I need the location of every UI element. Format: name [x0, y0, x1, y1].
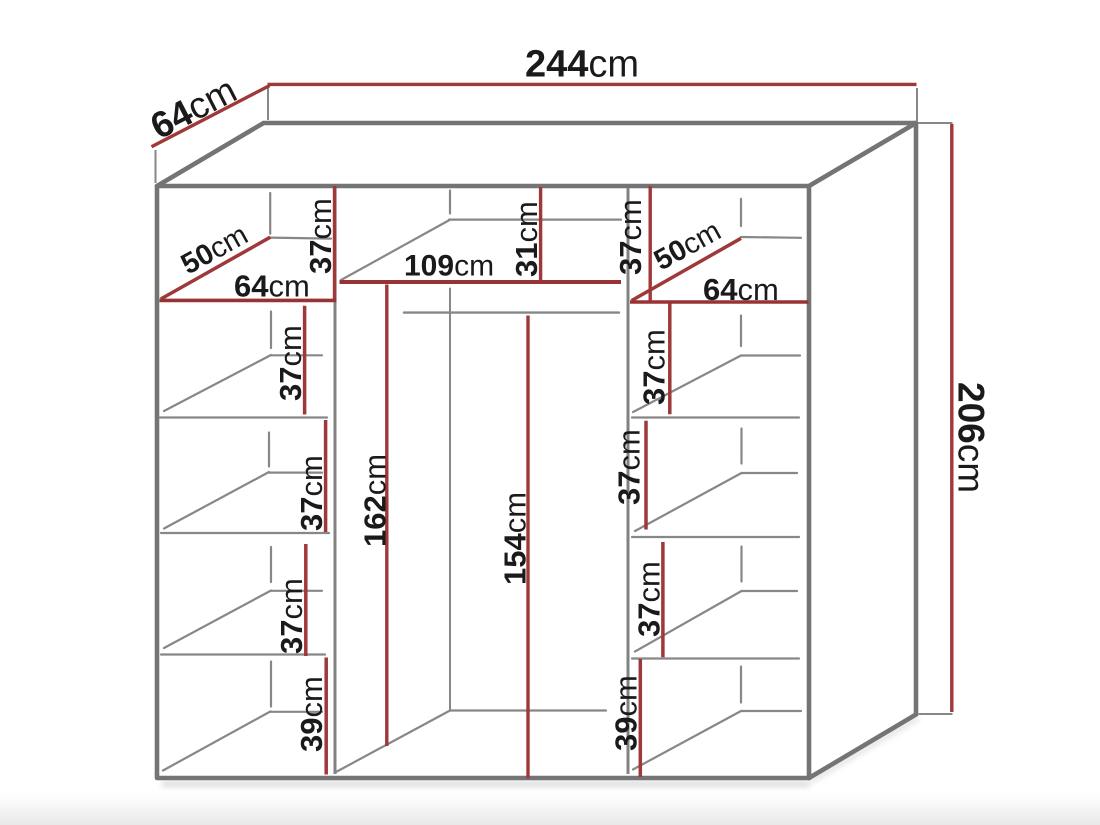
svg-text:37cm: 37cm	[294, 455, 329, 531]
svg-text:39cm: 39cm	[294, 676, 329, 752]
svg-text:31cm: 31cm	[509, 201, 544, 277]
svg-text:39cm: 39cm	[609, 675, 644, 751]
svg-text:37cm: 37cm	[637, 329, 672, 405]
svg-text:206cm: 206cm	[951, 382, 992, 493]
svg-text:37cm: 37cm	[303, 198, 338, 274]
svg-text:37cm: 37cm	[612, 429, 647, 505]
svg-text:37cm: 37cm	[632, 561, 667, 637]
svg-text:154cm: 154cm	[498, 492, 533, 585]
svg-text:37cm: 37cm	[273, 325, 308, 401]
svg-text:37cm: 37cm	[613, 199, 648, 275]
svg-text:162cm: 162cm	[358, 454, 393, 547]
svg-text:64cm: 64cm	[703, 272, 779, 307]
svg-text:64cm: 64cm	[234, 269, 310, 304]
svg-text:37cm: 37cm	[274, 578, 309, 654]
svg-text:244cm: 244cm	[525, 44, 639, 86]
svg-text:109cm: 109cm	[404, 250, 494, 283]
